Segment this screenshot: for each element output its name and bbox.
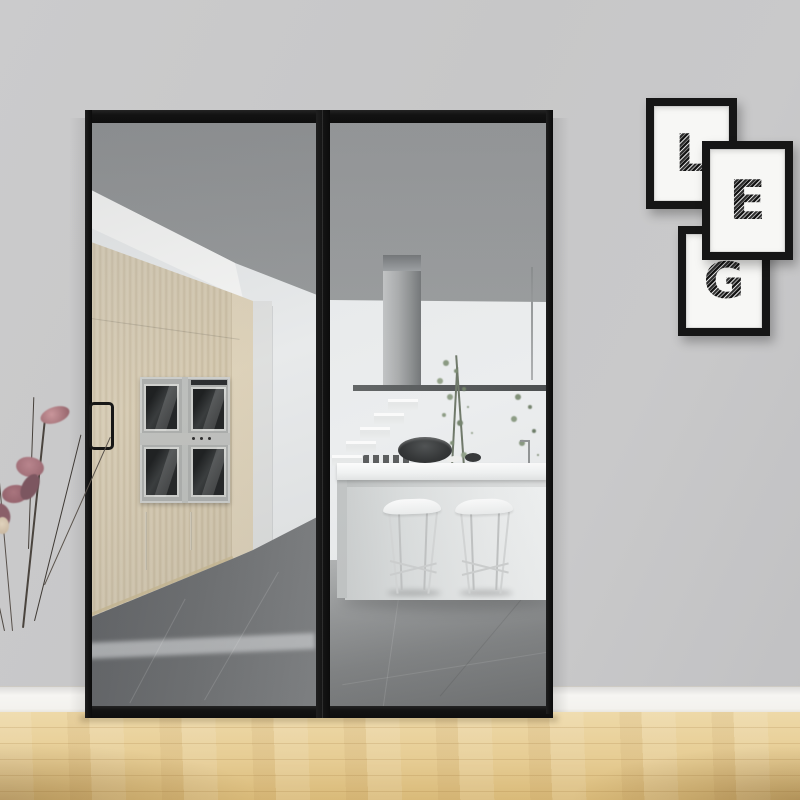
wood-floor-shading <box>0 712 800 800</box>
frame-mat: E <box>710 149 785 252</box>
frame-letter: G <box>703 256 744 306</box>
dried-flowers <box>0 385 88 650</box>
flower-bud <box>0 517 9 534</box>
wall-frame-letter-e: E <box>702 141 793 260</box>
door-wall-shadow-right <box>553 118 569 712</box>
glass-tint-right-panel <box>323 122 547 708</box>
photo-stage: L G E <box>0 0 800 800</box>
sliding-glass-doors <box>85 110 553 718</box>
door-right-stile <box>546 110 553 714</box>
door-middle-stiles <box>316 110 330 718</box>
flower-stem <box>22 414 46 628</box>
door-middle-stile-gap <box>322 110 323 718</box>
door-pull-handle <box>89 402 114 450</box>
glass-tint-left-panel <box>91 122 318 708</box>
frame-letter: E <box>729 174 766 228</box>
